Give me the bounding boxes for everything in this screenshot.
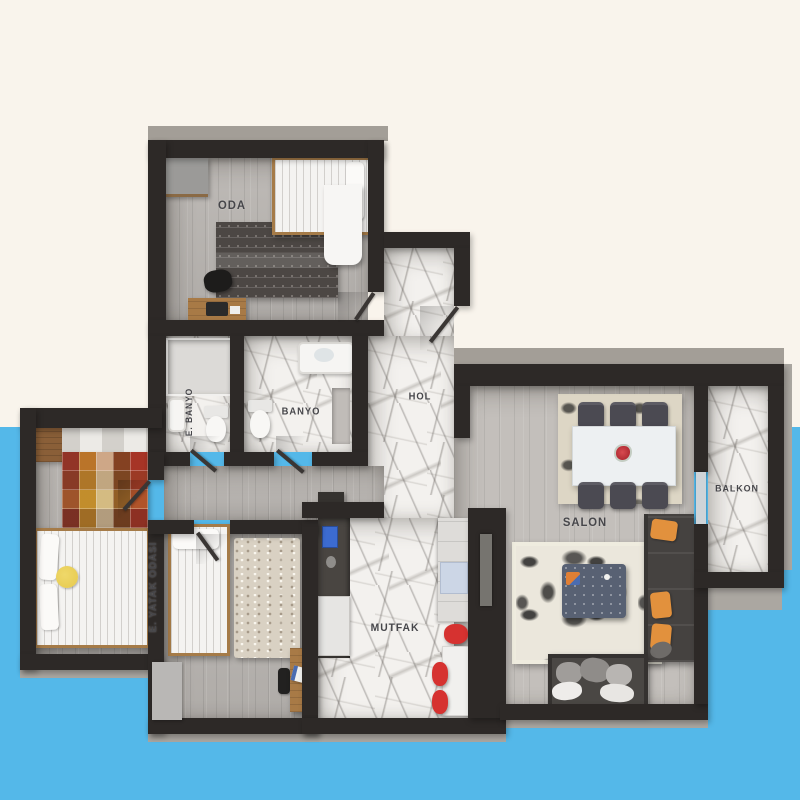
wall-salon-bottom — [500, 704, 708, 720]
balcony-door-glass — [696, 472, 706, 524]
wall-bedroom2-right — [302, 520, 318, 734]
wall-kitchen-bottom — [302, 718, 506, 734]
master-bed-yellow-cushion — [56, 566, 78, 588]
bedroom2-desk-chair — [278, 668, 290, 694]
entry-door-shadow — [420, 306, 454, 350]
kitchen-chair-red — [432, 690, 448, 714]
kitchen-chair-red — [432, 662, 448, 686]
wall-top-edge — [148, 126, 388, 141]
wall-salon-right-lower — [694, 524, 708, 704]
wall-bath-left — [148, 336, 166, 452]
wall-bedroom2-top — [148, 520, 194, 534]
room-oda-label: ODA — [218, 198, 246, 212]
wall-oda-left — [148, 140, 166, 336]
oda-paper — [230, 306, 240, 314]
bedroom2-shag-rug — [234, 538, 300, 658]
wall-hol-top — [384, 232, 470, 248]
wall-oda-top — [148, 140, 384, 158]
salon-dining-chair — [642, 482, 668, 509]
oda-cabinet — [164, 158, 208, 197]
salon-dining-chair — [578, 402, 604, 429]
room-salon-label: SALON — [563, 515, 607, 529]
wall-master-left — [20, 408, 36, 670]
wall-hol-right — [454, 248, 470, 306]
wall-oda-bottom — [148, 320, 384, 336]
bench-pillow — [606, 664, 632, 686]
salon-dining-chair — [578, 482, 604, 509]
oda-printer — [206, 302, 228, 316]
floor-plan: ODA HOL E. BANYO BANYO E. YATAK ODASI MU… — [0, 0, 800, 800]
banyo-door-shadow — [276, 436, 310, 452]
wall-bath-bottom — [224, 452, 274, 466]
room-balkon-label: BALKON — [715, 484, 759, 495]
salon-dining-chair — [610, 402, 636, 429]
bedroom2-gray-panel — [152, 662, 182, 720]
wall-banyo-hol-divider — [352, 336, 368, 452]
wall-bedroom2-bottom — [148, 718, 318, 734]
kitchen-appliance-blue — [322, 526, 338, 548]
wall-top-edge — [454, 348, 784, 365]
salon-dining-chair — [642, 402, 668, 429]
salon-dining-chair — [610, 482, 636, 509]
banyo-vanity — [332, 388, 350, 444]
salon-ottoman-cup — [604, 574, 610, 580]
building-side — [696, 588, 782, 610]
wall-master-top — [20, 408, 162, 428]
building-side — [784, 364, 792, 570]
room-mutfak-label: MUTFAK — [371, 622, 420, 634]
wall-master-right-stub — [148, 452, 164, 480]
sofa-pillow-orange — [650, 518, 679, 541]
banyo-sink-basin — [314, 348, 334, 362]
wall-master-bottom — [20, 654, 162, 670]
wall-bath-bottom — [312, 452, 368, 466]
ebanyo-door-shadow — [190, 436, 222, 452]
room-master-bedroom-label: E. YATAK ODASI — [147, 542, 159, 633]
room-balkon-floor — [708, 386, 768, 572]
oda-bed-blanket — [324, 185, 362, 265]
wall-salon-right-upper — [694, 386, 708, 472]
wall-bath-divider — [230, 336, 244, 452]
room-ebanyo-label: E. BANYO — [184, 388, 194, 436]
master-bed-pillow — [39, 584, 59, 631]
ebanyo-shower — [166, 338, 232, 396]
kitchen-sink-small — [326, 556, 336, 568]
wall-hol-salon-divider — [454, 386, 470, 438]
kitchen-fridge — [318, 596, 350, 656]
master-wardrobe-wood — [36, 426, 62, 462]
kitchen-counter-item — [440, 562, 468, 594]
salon-ottoman-book — [566, 572, 580, 585]
room-hol-label: HOL — [409, 392, 432, 403]
wall-oda-right — [368, 140, 384, 292]
room-banyo-label: BANYO — [282, 407, 321, 418]
wall-salon-top — [454, 364, 784, 386]
wall-balkon-right — [768, 386, 784, 572]
wall-balkon-bottom — [694, 572, 784, 588]
wall-kitchen-top — [302, 502, 384, 518]
sofa-pillow-orange — [650, 591, 673, 619]
kitchen-chair-red — [444, 624, 468, 644]
salon-tv — [480, 534, 492, 606]
banyo-toilet-bowl — [250, 410, 270, 438]
